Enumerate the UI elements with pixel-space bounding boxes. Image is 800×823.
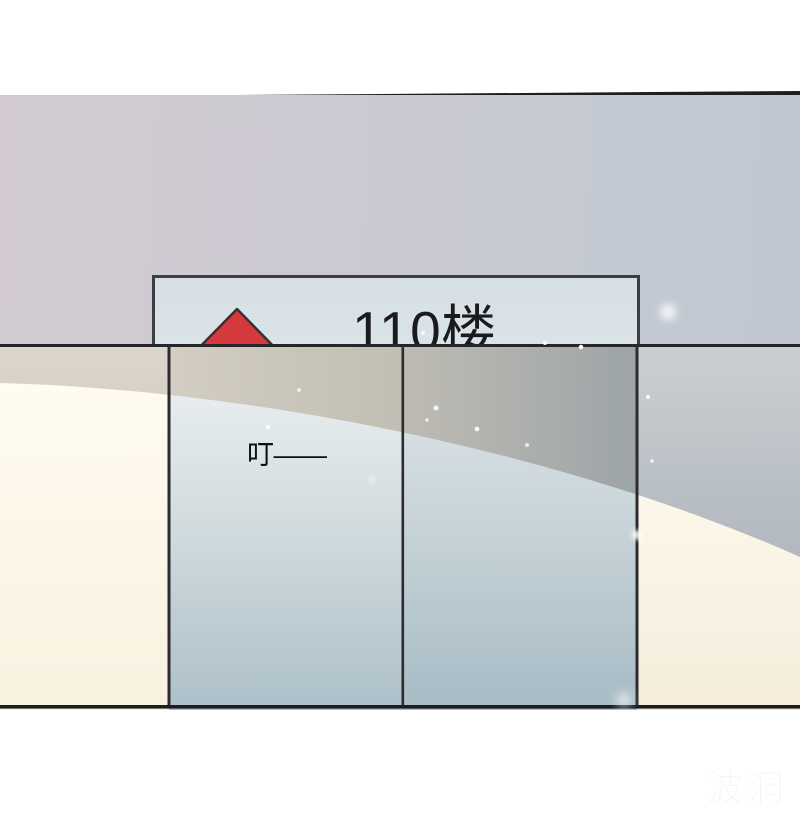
comic-panel: 110楼 <box>0 0 800 823</box>
bodong-logo-icon <box>652 760 706 818</box>
doors-top-line <box>0 344 800 347</box>
watermark: 波洞 <box>652 758 798 820</box>
elevator-wall-upper: 110楼 <box>0 95 800 344</box>
watermark-brand-text: 波洞 <box>707 769 787 809</box>
door-frame-right-line <box>636 346 639 707</box>
door-frame-left-line <box>168 346 171 707</box>
doors-bottom-line <box>0 705 800 709</box>
sfx-ding-text: 叮—— <box>247 440 327 470</box>
door-center-seam-line <box>402 346 405 707</box>
elevator-doors <box>0 344 800 710</box>
